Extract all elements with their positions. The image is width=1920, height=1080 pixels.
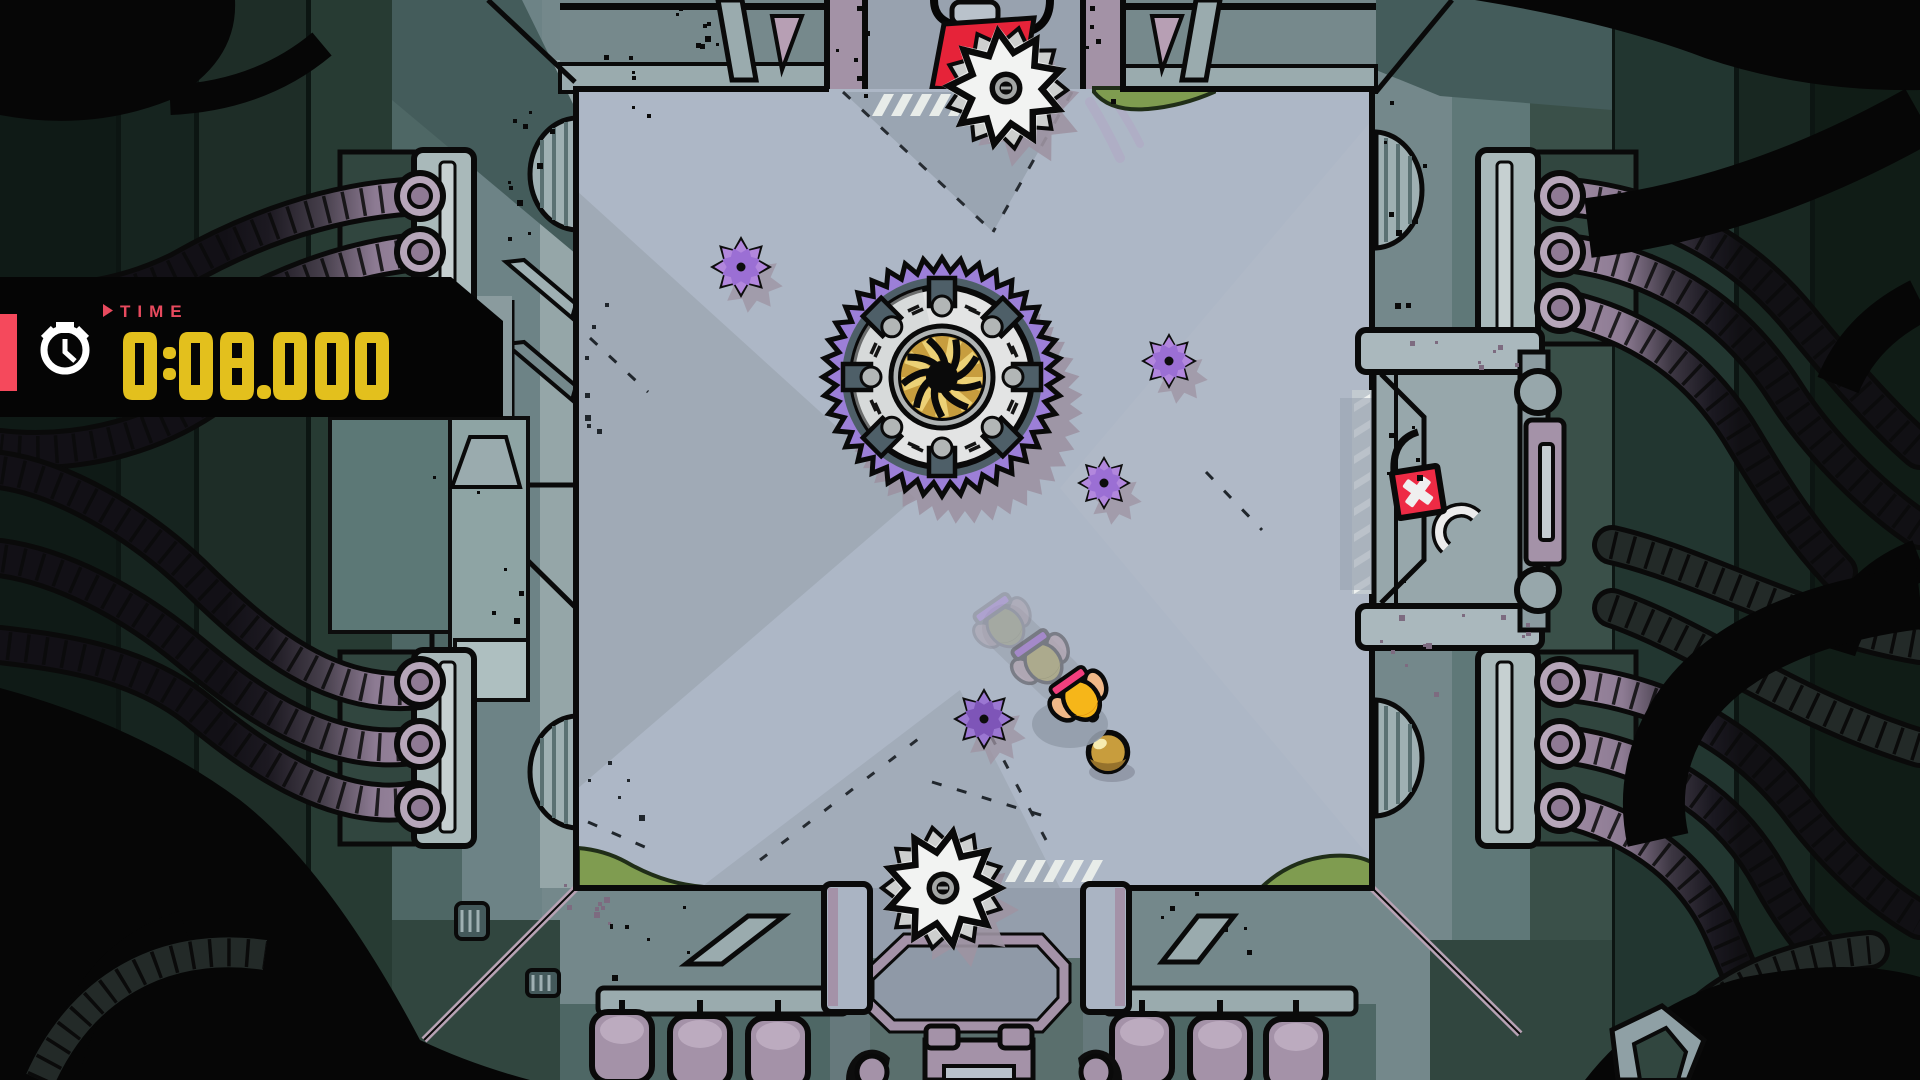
svg-text:TIME: TIME [120,302,189,321]
